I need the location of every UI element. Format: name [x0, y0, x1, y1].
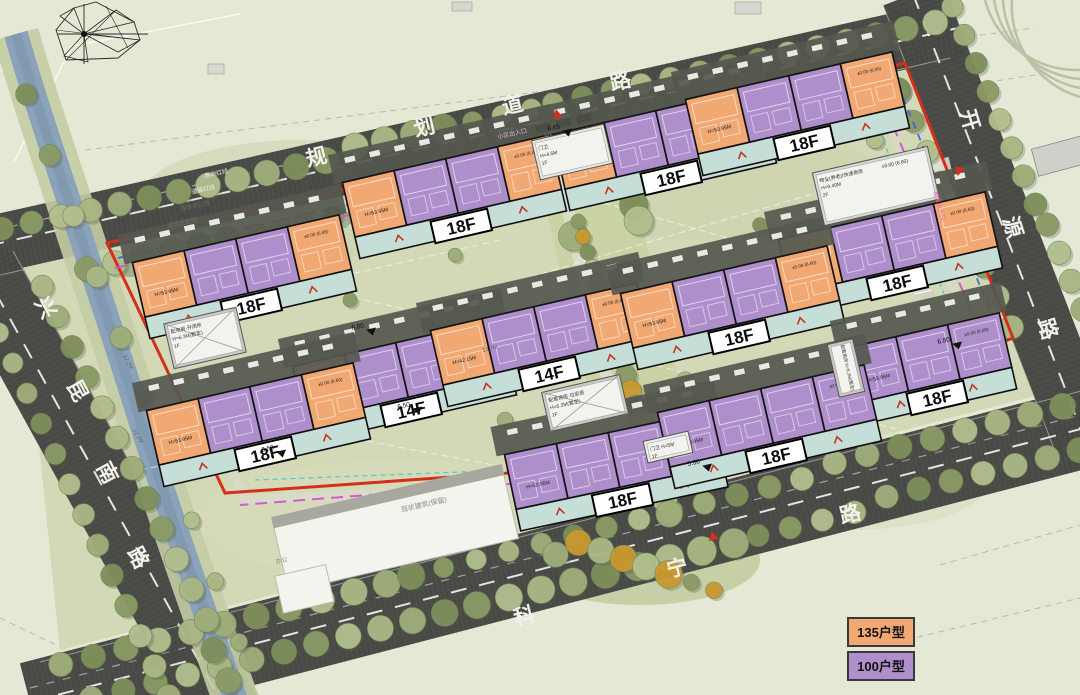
- legend-label-100: 100户型: [857, 659, 905, 674]
- site-plan-canvas: 现状建筑(保留) 办公 18FH=53.95M±0.00 (6.65)18FH=…: [0, 0, 1080, 695]
- shed: [452, 2, 472, 11]
- legend-label-135: 135户型: [857, 625, 905, 640]
- shed: [208, 64, 224, 74]
- shed: [735, 2, 761, 14]
- site-plan-screenshot: 现状建筑(保留) 办公 18FH=53.95M±0.00 (6.65)18FH=…: [0, 0, 1080, 695]
